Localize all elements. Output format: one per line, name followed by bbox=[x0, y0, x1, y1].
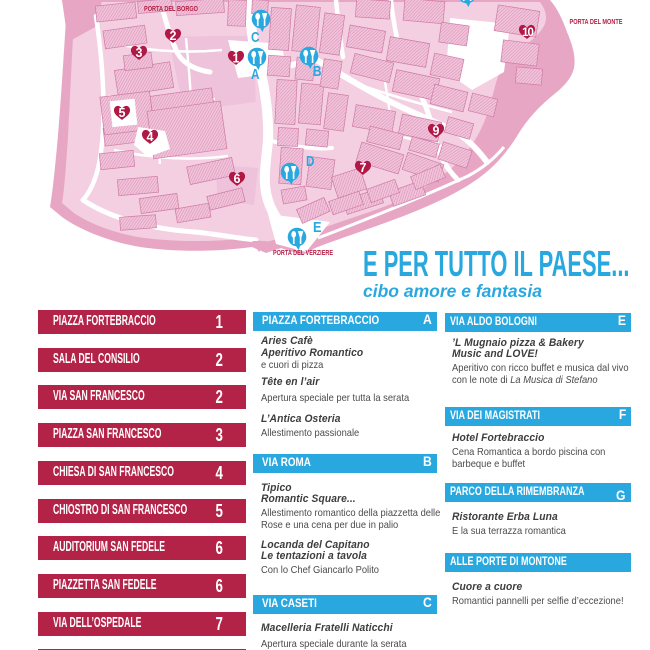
svg-text:B: B bbox=[313, 63, 322, 80]
svg-text:7: 7 bbox=[360, 161, 367, 175]
svg-text:E: E bbox=[313, 219, 322, 236]
svg-text:PORTA DEL VERZIERE: PORTA DEL VERZIERE bbox=[273, 248, 333, 257]
svg-text:2: 2 bbox=[170, 29, 177, 43]
svg-text:PORTA DEL BORGO: PORTA DEL BORGO bbox=[144, 4, 198, 13]
svg-text:5: 5 bbox=[119, 106, 126, 120]
svg-text:1: 1 bbox=[233, 52, 240, 66]
svg-text:10: 10 bbox=[522, 27, 533, 39]
svg-text:PORTA DEL MONTE: PORTA DEL MONTE bbox=[570, 17, 623, 26]
svg-text:C: C bbox=[251, 29, 260, 46]
svg-text:3: 3 bbox=[136, 46, 143, 60]
svg-text:6: 6 bbox=[234, 172, 241, 186]
svg-text:A: A bbox=[251, 66, 260, 83]
svg-text:9: 9 bbox=[433, 124, 440, 138]
svg-text:D: D bbox=[306, 153, 315, 170]
svg-text:4: 4 bbox=[147, 130, 154, 144]
